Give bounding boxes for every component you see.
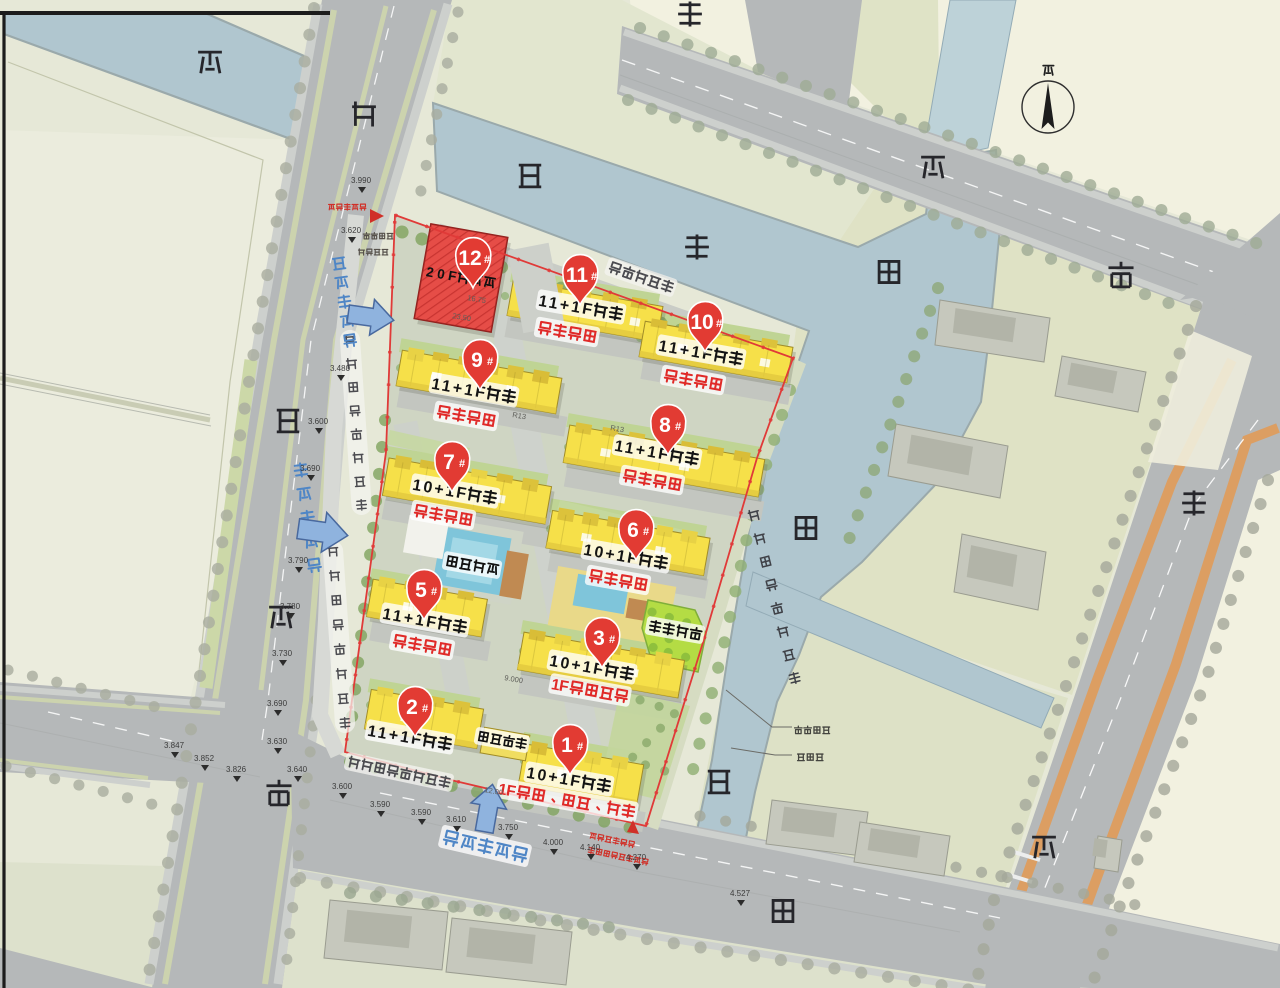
svg-text:#: # xyxy=(459,458,465,470)
svg-text:#: # xyxy=(577,741,583,753)
svg-text:3.852: 3.852 xyxy=(194,754,215,763)
svg-text:11: 11 xyxy=(566,264,589,287)
svg-text:3.600: 3.600 xyxy=(332,782,353,791)
svg-text:12: 12 xyxy=(458,247,481,270)
svg-text:#: # xyxy=(643,526,649,538)
svg-text:5: 5 xyxy=(415,579,427,602)
svg-text:#: # xyxy=(431,586,437,598)
svg-text:7: 7 xyxy=(443,451,455,474)
svg-text:1F: 1F xyxy=(550,676,570,696)
svg-text:2: 2 xyxy=(406,696,418,719)
svg-text:3.730: 3.730 xyxy=(272,649,293,658)
svg-text:3.590: 3.590 xyxy=(411,808,432,817)
svg-text:#: # xyxy=(422,703,428,715)
svg-text:3.610: 3.610 xyxy=(446,815,467,824)
svg-text:10: 10 xyxy=(690,311,713,334)
svg-text:8: 8 xyxy=(659,414,671,437)
svg-text:3.847: 3.847 xyxy=(164,741,185,750)
svg-text:4.000: 4.000 xyxy=(543,838,564,847)
svg-text:3.790: 3.790 xyxy=(288,556,309,565)
svg-text:3.750: 3.750 xyxy=(498,823,519,832)
svg-text:#: # xyxy=(484,254,490,266)
svg-text:4.270: 4.270 xyxy=(626,853,647,862)
svg-text:#: # xyxy=(675,421,681,433)
svg-text:3.600: 3.600 xyxy=(308,417,329,426)
svg-text:3.780: 3.780 xyxy=(280,602,301,611)
svg-text:3.480: 3.480 xyxy=(330,364,351,373)
svg-text:3.620: 3.620 xyxy=(341,226,362,235)
svg-text:#: # xyxy=(591,271,597,283)
svg-text:#: # xyxy=(609,634,615,646)
svg-text:4.527: 4.527 xyxy=(730,889,751,898)
svg-text:#: # xyxy=(716,318,722,330)
svg-text:#: # xyxy=(487,356,493,368)
svg-text:3.630: 3.630 xyxy=(267,737,288,746)
svg-text:1: 1 xyxy=(561,734,573,757)
svg-text:3: 3 xyxy=(593,627,605,650)
svg-text:9: 9 xyxy=(471,349,483,372)
svg-text:4.140: 4.140 xyxy=(580,843,601,852)
svg-text:3.826: 3.826 xyxy=(226,765,247,774)
svg-text:3.640: 3.640 xyxy=(287,765,308,774)
svg-text:3.590: 3.590 xyxy=(370,800,391,809)
svg-text:3.690: 3.690 xyxy=(300,464,321,473)
svg-text:3.690: 3.690 xyxy=(267,699,288,708)
svg-text:6: 6 xyxy=(627,519,639,542)
svg-text:3.990: 3.990 xyxy=(351,176,372,185)
